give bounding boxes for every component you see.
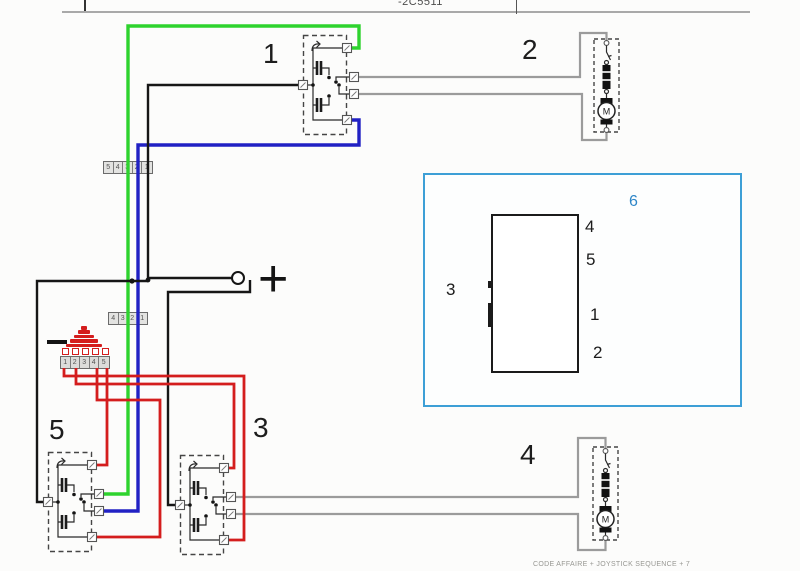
connector-cell: 4 — [109, 313, 119, 324]
label-relay-3: 3 — [253, 414, 269, 442]
connector-cell: 3 — [80, 357, 90, 368]
fuse-terminal — [72, 348, 79, 355]
plus-terminal-circle — [231, 271, 245, 285]
connector-cell: 4 — [114, 162, 124, 173]
inset-pin-4: 4 — [585, 218, 594, 235]
connector-cell: 1 — [138, 313, 148, 324]
minus-terminal-icon — [47, 340, 67, 344]
fuse-stack-bar — [74, 335, 94, 339]
connector-cell: 2 — [133, 162, 143, 173]
connector-cell: 2 — [128, 313, 138, 324]
fuse-terminal — [102, 348, 109, 355]
inset-label-6: 6 — [629, 194, 638, 210]
relay-1-component — [299, 36, 359, 135]
inset-pin-2: 2 — [593, 344, 602, 361]
inset-pin-5: 5 — [586, 251, 595, 268]
page-top-rule — [62, 11, 750, 13]
green-wire — [99, 26, 359, 494]
connector-block-1: 5 4 3 2 1 — [103, 161, 153, 174]
relay-5-component — [44, 453, 104, 552]
inset-pin-1: 1 — [590, 306, 599, 323]
fuse-stack-bar — [70, 339, 98, 343]
footer-caption: CODE AFFAIRE + JOYSTICK SEQUENCE + 7 — [533, 561, 690, 568]
label-relay-5: 5 — [49, 416, 65, 444]
plus-terminal-icon: + — [258, 253, 288, 305]
connector-cell: 1 — [61, 357, 71, 368]
connector-cell: 4 — [90, 357, 100, 368]
red-wires — [64, 368, 244, 540]
label-relay-1: 1 — [263, 40, 279, 68]
relay-3-component — [176, 456, 236, 555]
connector-block-2: 4 3 2 1 — [108, 312, 148, 325]
connector-cell: 1 — [142, 162, 152, 173]
label-motor-4: 4 — [520, 441, 536, 469]
connector-cell: 5 — [99, 357, 109, 368]
label-motor-2: 2 — [522, 36, 538, 64]
page-top-tick — [516, 0, 517, 14]
inset-notch — [488, 281, 491, 288]
connector-cell: 3 — [123, 162, 133, 173]
fuse-stack-bar — [78, 330, 90, 334]
inset-connector-outline — [491, 214, 579, 373]
connector-cell: 5 — [104, 162, 114, 173]
fuse-stack-bar — [66, 344, 102, 348]
page-margin-line — [84, 0, 86, 11]
schematic-code-text: -2C5511 — [398, 0, 443, 8]
motor-4-component — [593, 447, 618, 540]
fuse-terminal — [92, 348, 99, 355]
motor-2-component — [594, 39, 619, 132]
wiring-diagram-page: -2C5511 1 2 3 4 5 + 5 4 3 2 1 4 3 2 1 1 … — [0, 0, 800, 571]
fuse-terminal — [62, 348, 69, 355]
connector-cell: 2 — [71, 357, 81, 368]
fuse-terminal — [82, 348, 89, 355]
inset-panel — [423, 173, 742, 407]
connector-cell: 3 — [119, 313, 129, 324]
inset-notch — [488, 303, 491, 327]
inset-pin-3: 3 — [446, 281, 455, 298]
fuse-connector-strip: 1 2 3 4 5 — [60, 356, 110, 369]
